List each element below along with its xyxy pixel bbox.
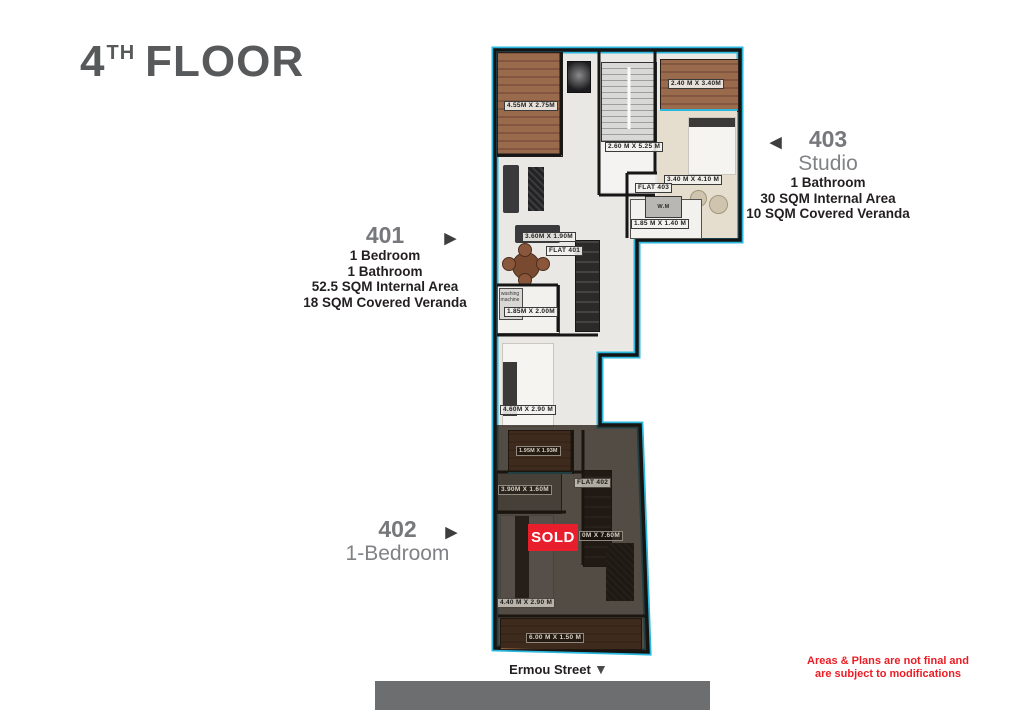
unit-401-number: 401 ▶ — [300, 222, 470, 248]
unit-403-type: Studio — [740, 152, 916, 175]
dim-label-bathroom-401: 1.85M X 2.00M — [504, 307, 558, 317]
arrow-left-icon: ◀ — [770, 130, 782, 156]
floor-number: 4 — [80, 40, 105, 84]
dim-label-living-402: 0M X 7.60M — [579, 531, 623, 541]
unit-401-spec: 18 SQM Covered Veranda — [300, 295, 470, 311]
dim-label-bathroom-403: 1.85 M X 1.40 M — [631, 219, 689, 229]
dim-label-bedroom-403: 3.40 M X 4.10 M — [664, 175, 722, 185]
dining-chair — [502, 257, 516, 271]
stair-rail — [628, 67, 631, 129]
unit-info-401: 401 ▶ 1 Bedroom 1 Bathroom 52.5 SQM Inte… — [300, 222, 470, 310]
flat-label-401: FLAT 401 — [546, 246, 583, 256]
bed-403 — [688, 117, 736, 175]
washing-machine-box-403: W.M — [645, 196, 682, 218]
dim-label-veranda-401: 4.55M X 2.75M — [504, 101, 558, 111]
unit-403-spec: 30 SQM Internal Area — [740, 191, 916, 207]
unit-403-number: ◀ 403 — [740, 126, 916, 152]
dim-label-veranda-402-bottom: 6.00 M X 1.50 M — [526, 633, 584, 643]
floor-suffix: TH — [106, 43, 135, 63]
elevator — [567, 61, 591, 93]
arrow-down-icon: ▼ — [594, 661, 608, 677]
dining-chair — [518, 243, 532, 257]
wm-label: W.M — [657, 204, 669, 210]
unit-info-403: ◀ 403 Studio 1 Bathroom 30 SQM Internal … — [740, 126, 916, 222]
dining-chair — [536, 257, 550, 271]
floor-word: FLOOR — [145, 40, 304, 84]
dim-label-bedroom-402: 4.40 M X 2.90 M — [497, 598, 555, 608]
floor-plan-drawing: W.M — [488, 45, 754, 660]
arrow-right-icon: ▶ — [445, 520, 457, 546]
unit-401-spec: 1 Bathroom — [300, 264, 470, 280]
street-bar — [375, 681, 710, 710]
flat-label-403: FLAT 403 — [635, 183, 672, 193]
dim-label-veranda-402-top: 1.95M X 1.93M — [516, 446, 561, 456]
sofa-401 — [503, 165, 519, 213]
washing-machine-label: washing machine — [497, 292, 523, 303]
street-name: Ermou Street — [495, 662, 605, 677]
disclaimer: Areas & Plans are not final and are subj… — [795, 655, 981, 681]
flat-label-402: FLAT 402 — [574, 478, 611, 488]
page-title: 4 TH FLOOR — [80, 40, 304, 84]
disclaimer-line1: Areas & Plans are not final and — [795, 655, 981, 668]
disclaimer-line2: are subject to modifications — [795, 668, 981, 681]
unit-402-number: 402 ▶ — [320, 516, 475, 542]
dim-label-staircase: 2.60 M X 5.25 M — [605, 142, 663, 152]
unit-403-spec: 1 Bathroom — [740, 175, 916, 191]
unit-403-spec: 10 SQM Covered Veranda — [740, 206, 916, 222]
dim-label-kitchen-401: 3.60M X 1.90M — [522, 232, 576, 242]
floor-plan-page: 4 TH FLOOR 401 ▶ 1 Bedroom 1 Bathroom 52… — [0, 0, 1024, 724]
arrow-right-icon: ▶ — [444, 226, 456, 252]
sold-badge: SOLD — [528, 524, 578, 551]
coffee-table-401 — [528, 167, 544, 211]
staircase — [601, 62, 657, 142]
pouf — [709, 195, 728, 214]
dim-label-bedroom-401: 4.60M X 2.90 M — [500, 405, 556, 415]
dim-label-bathroom-402: 3.90M X 1.60M — [498, 485, 552, 495]
unit-401-spec: 52.5 SQM Internal Area — [300, 279, 470, 295]
dim-label-veranda-403: 2.40 M X 3.40M — [668, 79, 724, 89]
unit-info-402: 402 ▶ 1-Bedroom — [320, 516, 475, 565]
